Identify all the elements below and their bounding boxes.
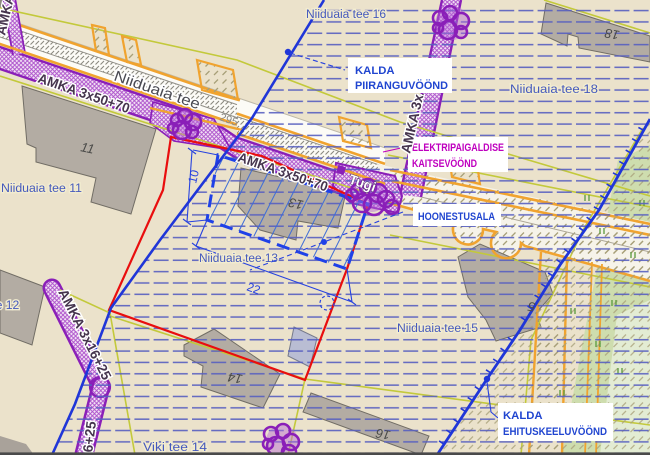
svg-text:KALDA: KALDA bbox=[503, 410, 543, 422]
svg-text:Niiduaia tee 18: Niiduaia tee 18 bbox=[510, 82, 598, 96]
svg-text:Niiduaia tee 12: Niiduaia tee 12 bbox=[0, 298, 20, 312]
svg-text:KALDA: KALDA bbox=[355, 65, 395, 77]
svg-text:PIIRANGUVÖÖND: PIIRANGUVÖÖND bbox=[355, 79, 448, 92]
svg-text:EHITUSKEELUVÖÖND: EHITUSKEELUVÖÖND bbox=[503, 425, 607, 438]
svg-text:Viki tee 14: Viki tee 14 bbox=[143, 440, 207, 454]
svg-text:HOONESTUSALA: HOONESTUSALA bbox=[418, 211, 495, 223]
svg-text:Niiduaia tee 13: Niiduaia tee 13 bbox=[199, 251, 278, 265]
svg-text:Niiduaia tee 11: Niiduaia tee 11 bbox=[1, 181, 82, 195]
svg-text:Niiduaia tee 15: Niiduaia tee 15 bbox=[397, 321, 478, 335]
svg-text:Niiduaia tee 16: Niiduaia tee 16 bbox=[306, 7, 386, 21]
svg-text:14: 14 bbox=[227, 370, 244, 387]
svg-text:KAITSEVÖÖND: KAITSEVÖÖND bbox=[412, 157, 477, 170]
svg-text:ELEKTRIPAIGALDISE: ELEKTRIPAIGALDISE bbox=[412, 142, 504, 154]
